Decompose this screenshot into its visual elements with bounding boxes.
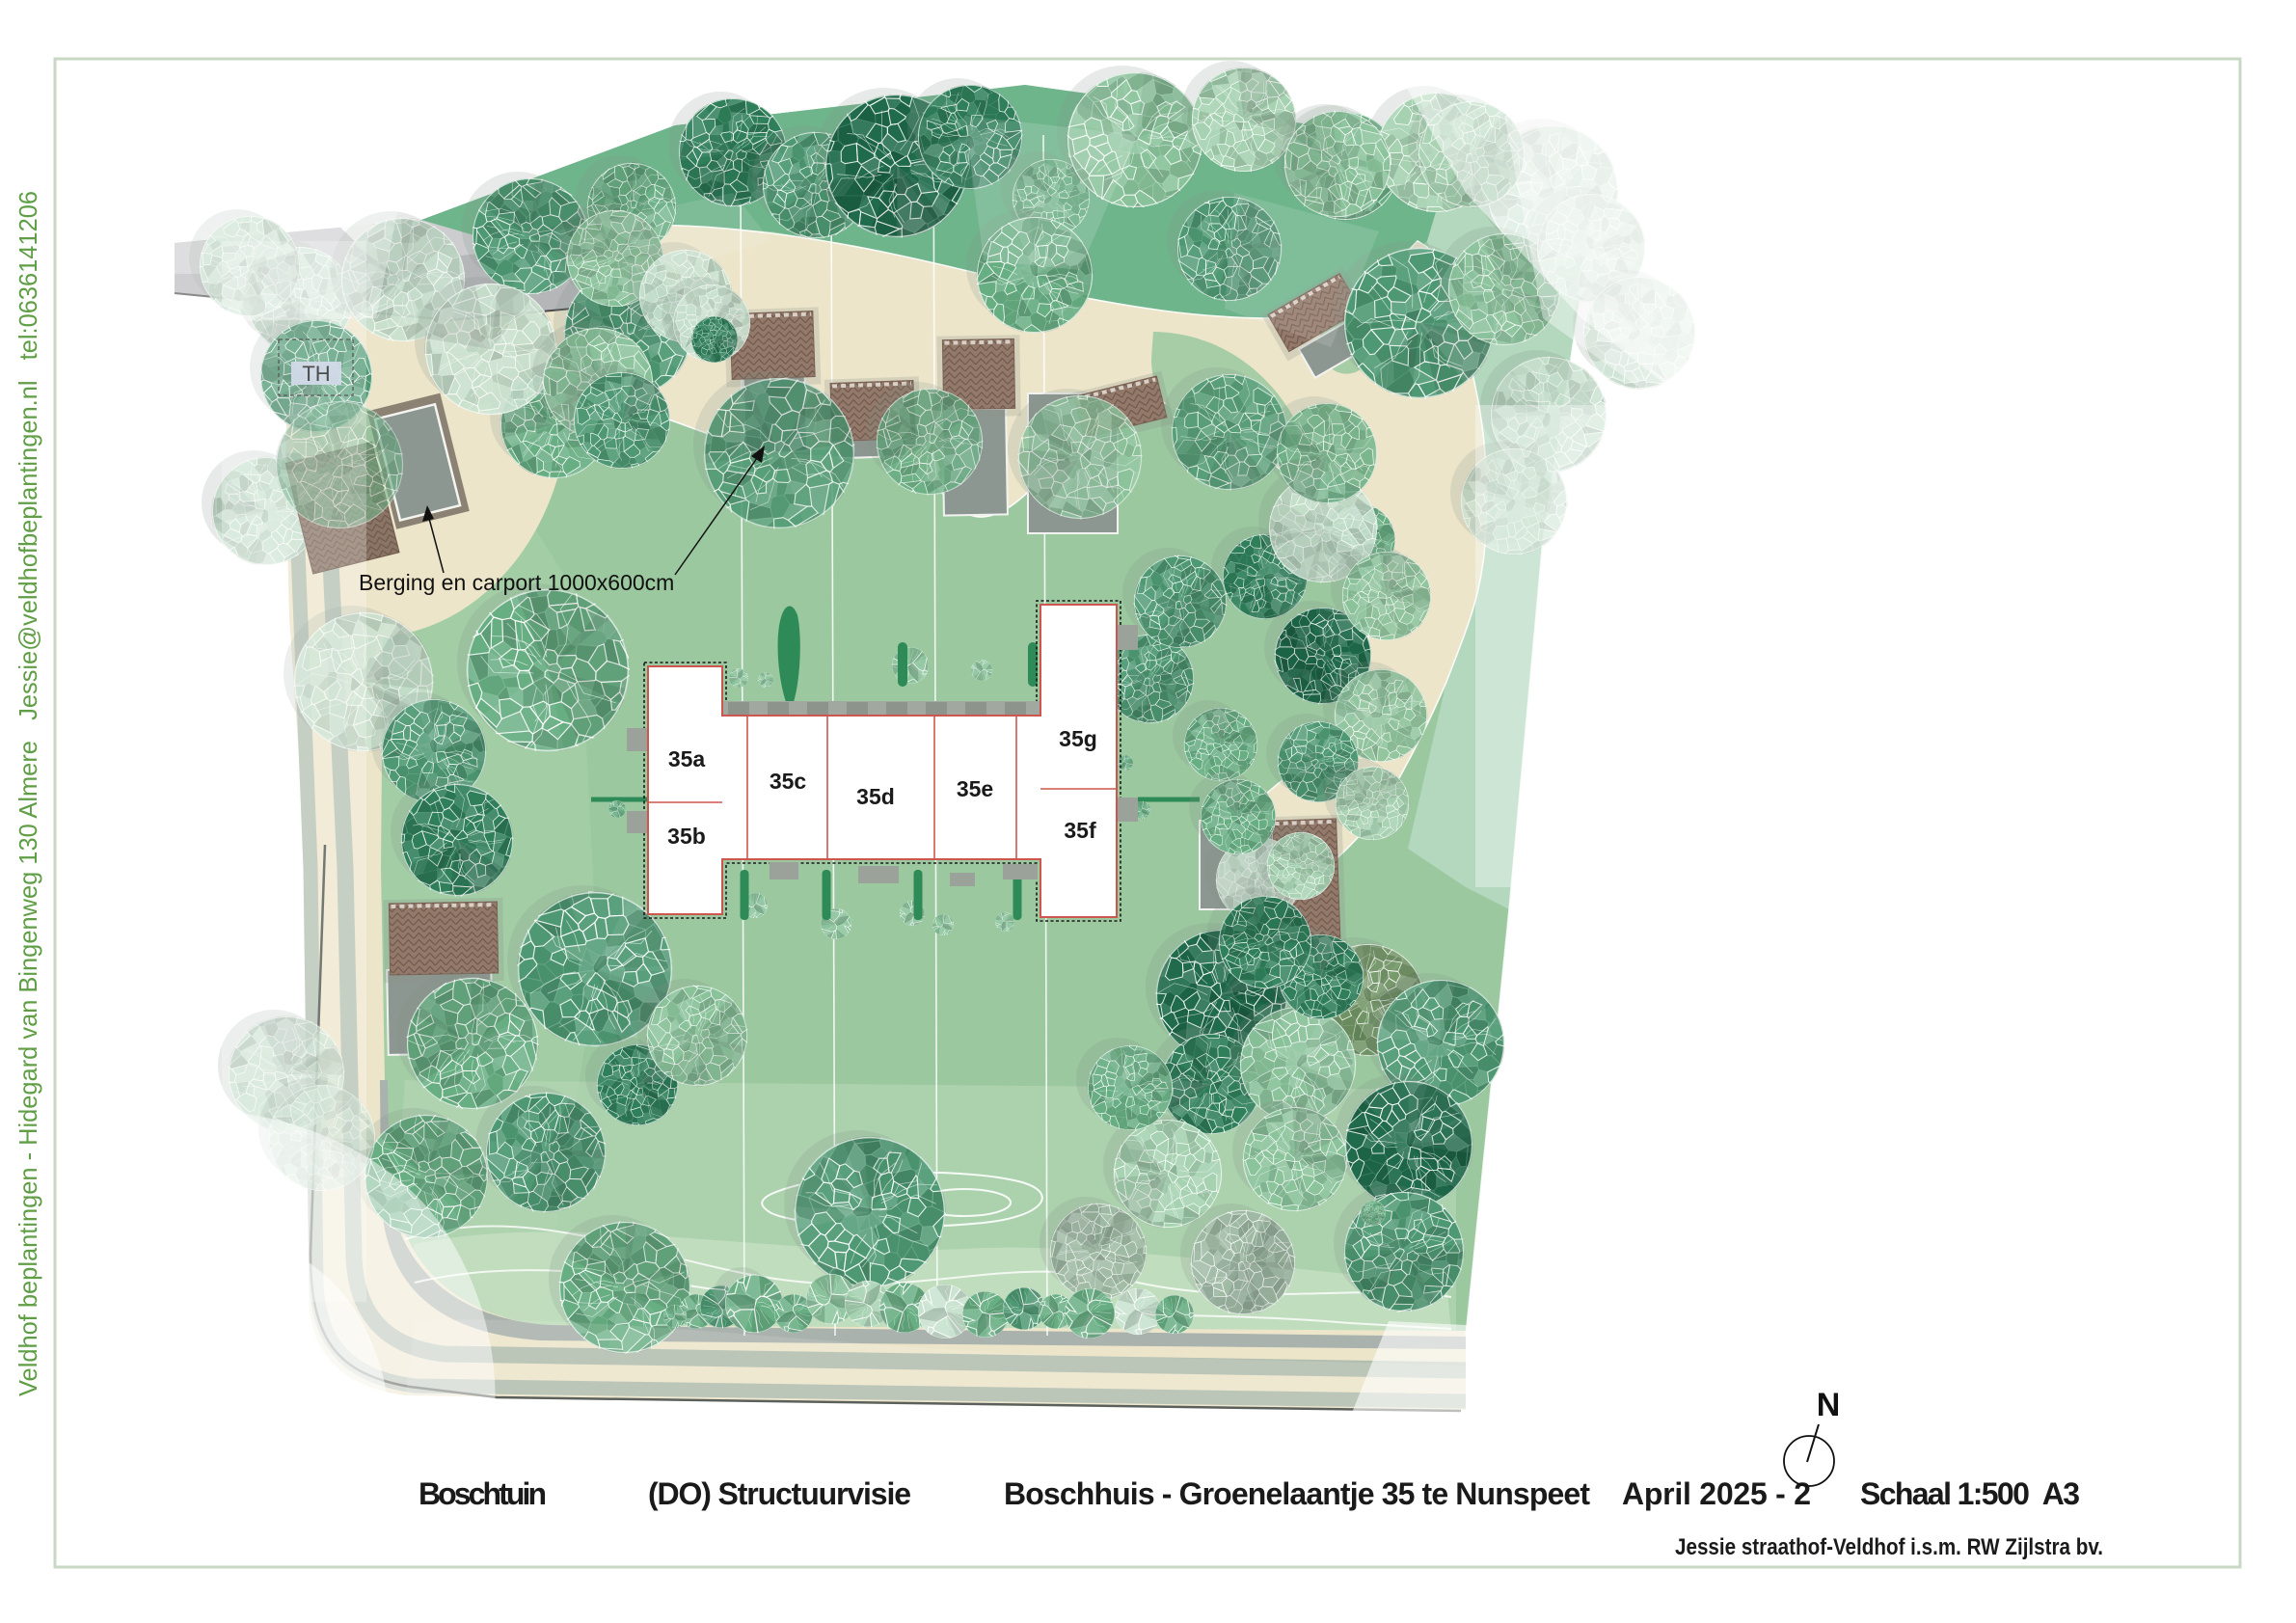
svg-text:35b: 35b (667, 824, 706, 849)
svg-text:Berging en carport 1000x600cm: Berging en carport 1000x600cm (359, 570, 674, 595)
svg-text:N: N (1817, 1387, 1841, 1423)
svg-text:35d: 35d (856, 784, 895, 809)
svg-text:35g: 35g (1059, 726, 1097, 751)
svg-text:Jessie straathof-Veldhof i.s.m: Jessie straathof-Veldhof i.s.m. RW Zijls… (1675, 1534, 2103, 1560)
svg-text:Boschhuis - Groenelaantje 35 t: Boschhuis - Groenelaantje 35 te Nunspeet (1004, 1476, 1590, 1511)
svg-text:35e: 35e (957, 776, 993, 801)
svg-text:(DO) Structuurvisie: (DO) Structuurvisie (648, 1476, 911, 1511)
svg-text:35a: 35a (668, 746, 706, 771)
svg-text:April 2025 - 2: April 2025 - 2 (1622, 1476, 1811, 1511)
svg-text:Schaal 1:500 A3: Schaal 1:500 A3 (1860, 1476, 2080, 1511)
svg-text:Veldhof beplantingen - Hidegar: Veldhof beplantingen - Hidegard van Bing… (14, 191, 42, 1396)
svg-text:35c: 35c (770, 769, 807, 794)
svg-text:Boschtuin: Boschtuin (419, 1476, 547, 1511)
svg-text:35f: 35f (1064, 818, 1096, 843)
